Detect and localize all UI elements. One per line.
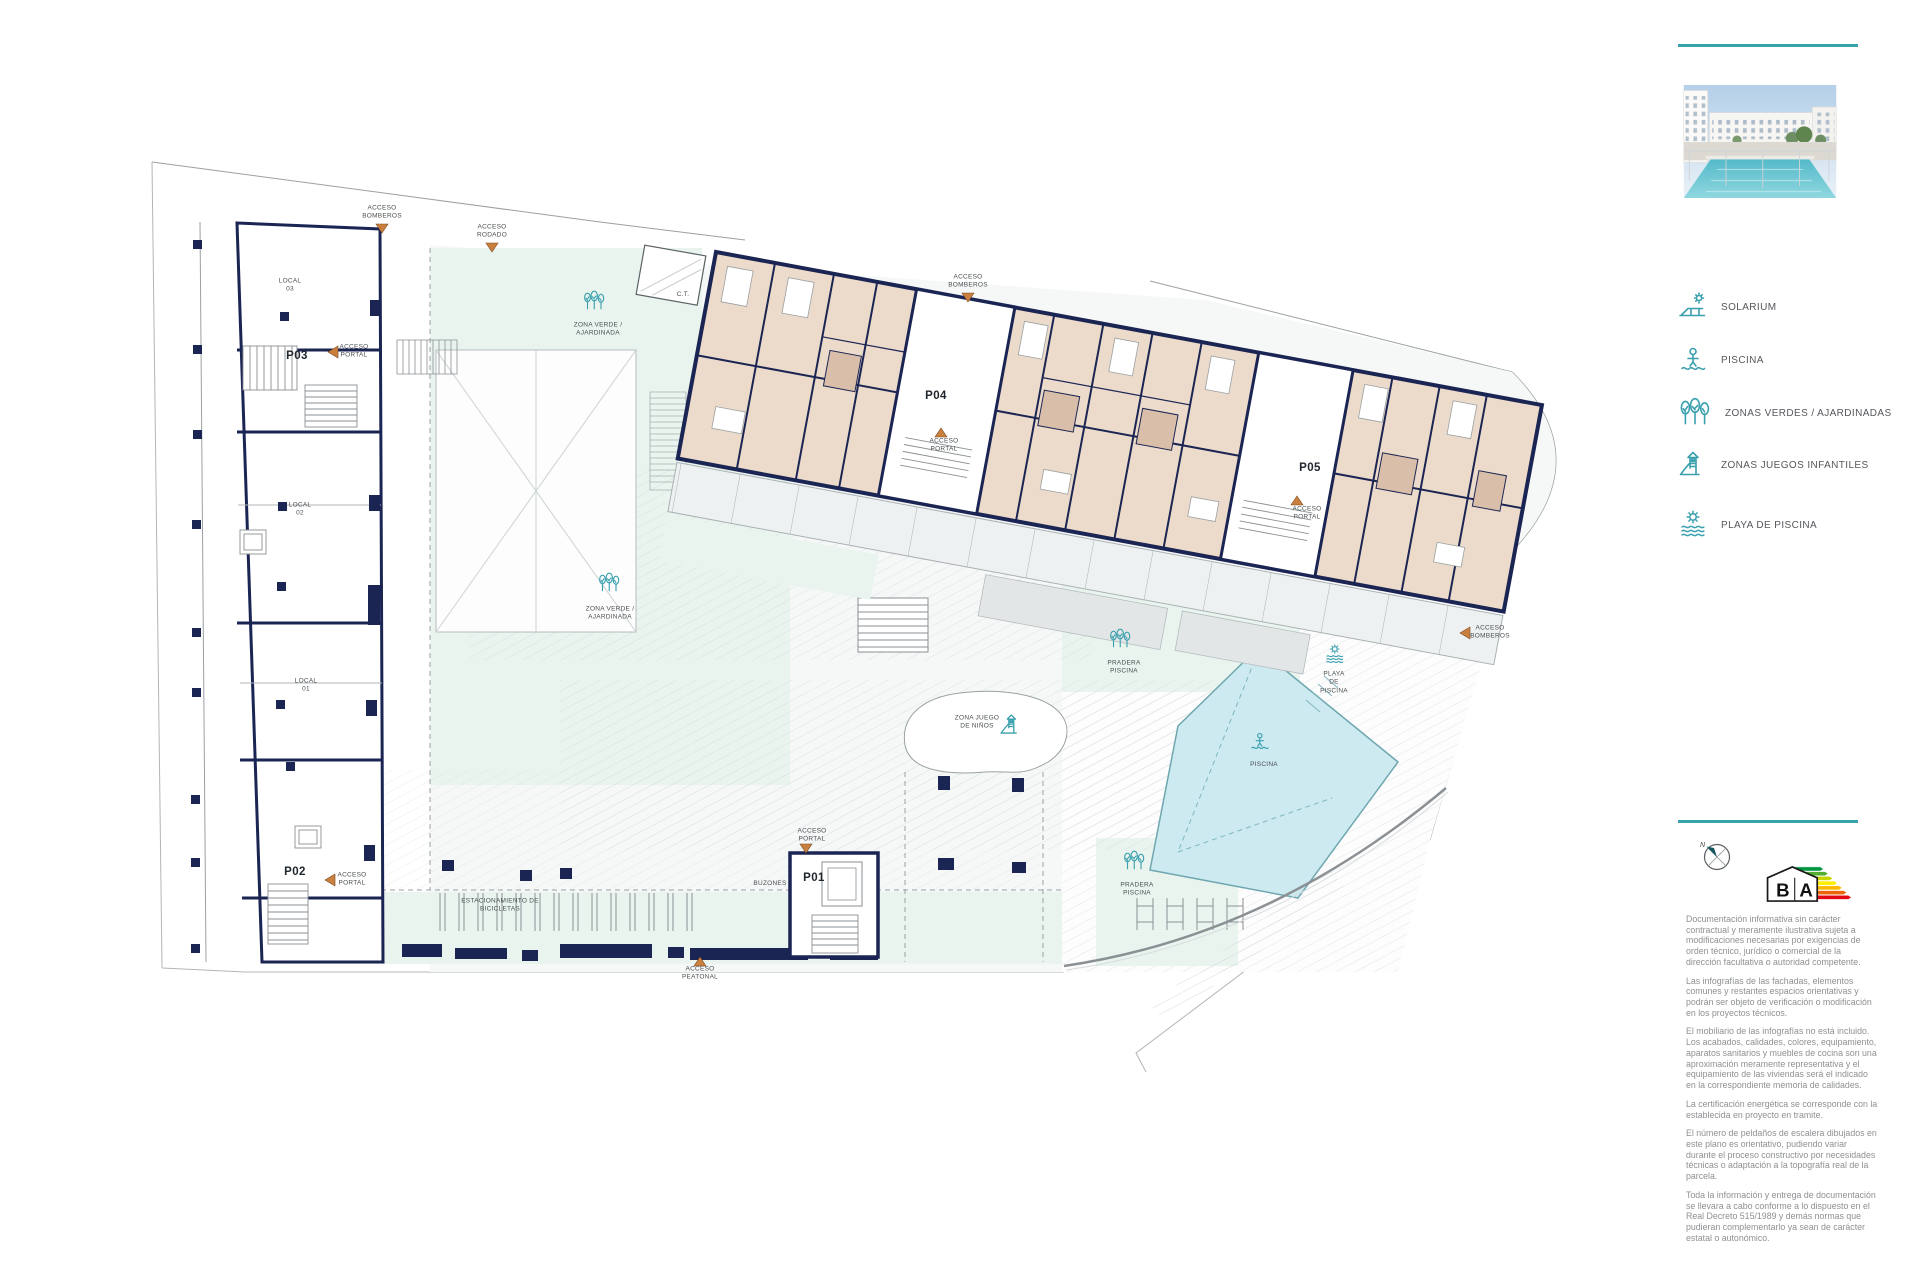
legend-label: PISCINA [1721, 355, 1764, 366]
label-local-02: LOCAL 02 [289, 502, 312, 519]
legend-label: SOLARIUM [1721, 302, 1776, 313]
legend-item-playa-piscina: PLAYA DE PISCINA [1678, 510, 1914, 540]
label-zona-juego: ZONA JUEGO DE NIÑOS [955, 715, 999, 732]
pergola-structure [436, 350, 636, 632]
label-zona-verde: ZONA VERDE / AJARDINADA [574, 322, 623, 339]
disclaimer-paragraph: El mobiliario de las infografías no está… [1686, 1026, 1878, 1090]
swimmer-icon [1678, 345, 1708, 375]
compass-icon: N [1698, 838, 1734, 874]
legend-item-juegos-infantiles: ZONAS JUEGOS INFANTILES [1678, 450, 1914, 480]
label-acceso-peatonal: ACCESO PEATONAL [682, 966, 718, 983]
label-buzones: BUZONES [753, 880, 786, 888]
label-acceso-bomberos: ACCESO BOMBEROS [362, 205, 402, 222]
legend-item-zonas-verdes: ZONAS VERDES / AJARDINADAS [1678, 397, 1914, 429]
disclaimer-text: Documentación informativa sin carácter c… [1686, 914, 1878, 1251]
label-bicicletas: ESTACIONAMIENTO DE BICICLETAS [461, 898, 539, 915]
legend-item-solarium: SOLARIUM [1678, 292, 1914, 322]
legend-item-piscina: PISCINA [1678, 345, 1914, 375]
label-portal-p02: P02 [284, 866, 306, 878]
disclaimer-paragraph: El número de peldaños de escalera dibuja… [1686, 1128, 1878, 1182]
label-piscina: PISCINA [1250, 761, 1278, 769]
disclaimer-paragraph: La certificación energética se correspon… [1686, 1099, 1878, 1120]
energy-letter-a: A [1799, 879, 1812, 900]
label-local-03: LOCAL 03 [279, 278, 302, 295]
label-zona-verde: ZONA VERDE / AJARDINADA [586, 606, 635, 623]
sidebar-bottom-rule [1678, 820, 1858, 823]
project-photo [1678, 85, 1842, 198]
plaza-stair [858, 598, 928, 652]
disclaimer-paragraph: Toda la información y entrega de documen… [1686, 1190, 1878, 1244]
disclaimer-paragraph: Documentación informativa sin carácter c… [1686, 914, 1878, 968]
label-pradera-piscina: PRADERA PISCINA [1120, 882, 1153, 899]
label-acceso-portal: ACCESO PORTAL [1293, 506, 1322, 523]
compass-north-label: N [1700, 842, 1706, 849]
legend-label: ZONAS JUEGOS INFANTILES [1721, 460, 1869, 471]
label-acceso-portal: ACCESO PORTAL [338, 872, 367, 889]
label-acceso-portal: ACCESO PORTAL [930, 438, 959, 455]
legend-label: ZONAS VERDES / AJARDINADAS [1725, 408, 1892, 419]
label-portal-p01: P01 [803, 872, 825, 884]
disclaimer-paragraph: Las infografías de las fachadas, element… [1686, 976, 1878, 1019]
sun-waves-icon [1678, 510, 1708, 540]
label-portal-p04: P04 [925, 390, 947, 402]
label-ct: C.T. [677, 291, 690, 299]
slide-icon [1678, 450, 1708, 480]
portal-p01-building [790, 853, 878, 957]
sidebar-top-rule [1678, 44, 1858, 47]
energy-rating-logo: B A [1766, 858, 1856, 910]
ct-building [636, 245, 706, 305]
label-acceso-portal: ACCESO PORTAL [798, 828, 827, 845]
left-building [237, 223, 383, 962]
label-local-01: LOCAL 01 [295, 678, 318, 695]
energy-letter-b: B [1776, 879, 1789, 900]
label-acceso-bomberos: ACCESO BOMBEROS [948, 274, 988, 291]
floor-plan-drawing [0, 0, 1920, 1280]
label-acceso-portal: ACCESO PORTAL [340, 344, 369, 361]
trees-icon [1678, 397, 1712, 429]
label-acceso-bomberos: ACCESO BOMBEROS [1470, 625, 1510, 642]
label-portal-p05: P05 [1299, 462, 1321, 474]
solarium-icon [1678, 292, 1708, 322]
site-plan-page: ACCESO BOMBEROS ACCESO RODADO ACCESO BOM… [0, 0, 1920, 1280]
label-pradera-piscina: PRADERA PISCINA [1107, 660, 1140, 677]
label-acceso-rodado: ACCESO RODADO [477, 224, 507, 241]
legend-label: PLAYA DE PISCINA [1721, 520, 1817, 531]
label-playa-de-piscina: PLAYA DE PISCINA [1320, 670, 1348, 695]
label-portal-p03: P03 [286, 350, 308, 362]
